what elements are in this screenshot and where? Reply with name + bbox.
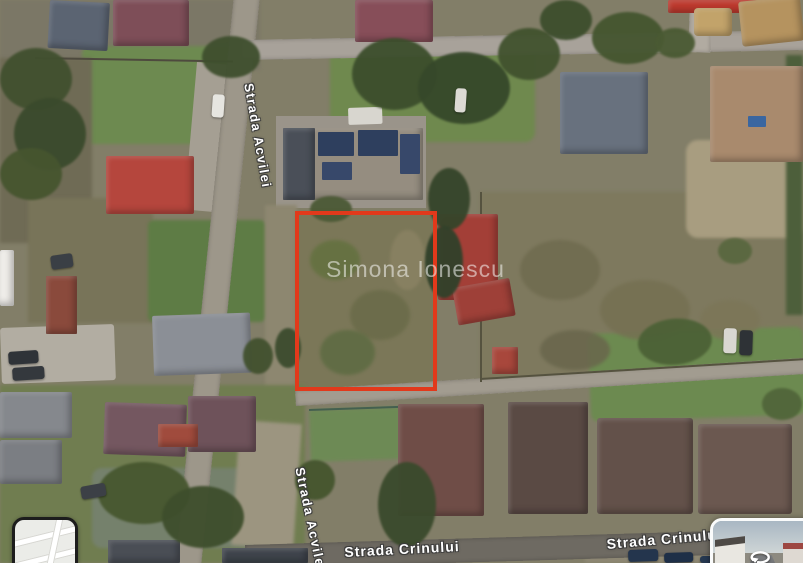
scrub-blob — [540, 330, 610, 370]
shed-roof — [46, 276, 77, 334]
scrub-blob — [520, 240, 600, 300]
house-roof — [698, 424, 792, 514]
property-plot-outline — [295, 211, 437, 391]
map-street-line — [12, 543, 78, 563]
tree — [162, 486, 244, 548]
shed-roof — [492, 347, 518, 374]
street-view-building — [783, 543, 803, 563]
tree — [0, 148, 62, 200]
house-roof — [0, 392, 72, 438]
house-roof — [188, 396, 256, 452]
house-roof — [355, 0, 433, 42]
car — [628, 549, 658, 562]
car — [8, 350, 39, 365]
solar-panel — [400, 134, 420, 174]
house-roof — [158, 424, 198, 447]
greenhouse — [348, 107, 383, 125]
solar-panel — [748, 116, 766, 127]
tree — [762, 388, 802, 420]
car — [723, 328, 737, 353]
building — [0, 250, 14, 306]
house-roof — [710, 66, 803, 162]
house-roof — [508, 402, 588, 514]
house-roof — [113, 0, 189, 46]
tree — [202, 36, 260, 78]
house-roof — [597, 418, 693, 514]
tree — [540, 0, 592, 40]
house-roof — [283, 128, 315, 200]
solar-panel — [318, 132, 354, 156]
car — [211, 94, 225, 118]
house-roof — [106, 156, 194, 214]
car — [12, 366, 45, 381]
house-roof — [108, 540, 180, 563]
solar-panel — [358, 130, 398, 156]
house-roof — [152, 313, 252, 376]
lawn — [309, 407, 409, 462]
tree — [592, 12, 664, 64]
car — [664, 552, 693, 563]
tree — [655, 28, 695, 58]
house-roof — [47, 0, 109, 51]
patio — [694, 8, 732, 36]
tree — [378, 462, 436, 547]
map-street-line — [12, 521, 78, 550]
car — [739, 330, 753, 355]
street-view-building — [715, 536, 745, 563]
tree — [243, 338, 273, 374]
bush — [718, 238, 752, 264]
watermark-text: Simona Ionescu — [326, 256, 505, 283]
car — [454, 88, 467, 113]
house-roof — [0, 440, 62, 484]
map-type-toggle[interactable] — [12, 517, 78, 563]
house-roof — [738, 0, 803, 47]
house-roof — [560, 72, 648, 154]
solar-panel — [322, 162, 352, 180]
house-roof — [222, 548, 308, 563]
satellite-map-canvas[interactable]: Strada Acvilei Strada Acvilei Strada Cri… — [0, 0, 803, 563]
street-view-rotate-icon — [747, 549, 773, 563]
street-view-preview[interactable] — [710, 518, 803, 563]
